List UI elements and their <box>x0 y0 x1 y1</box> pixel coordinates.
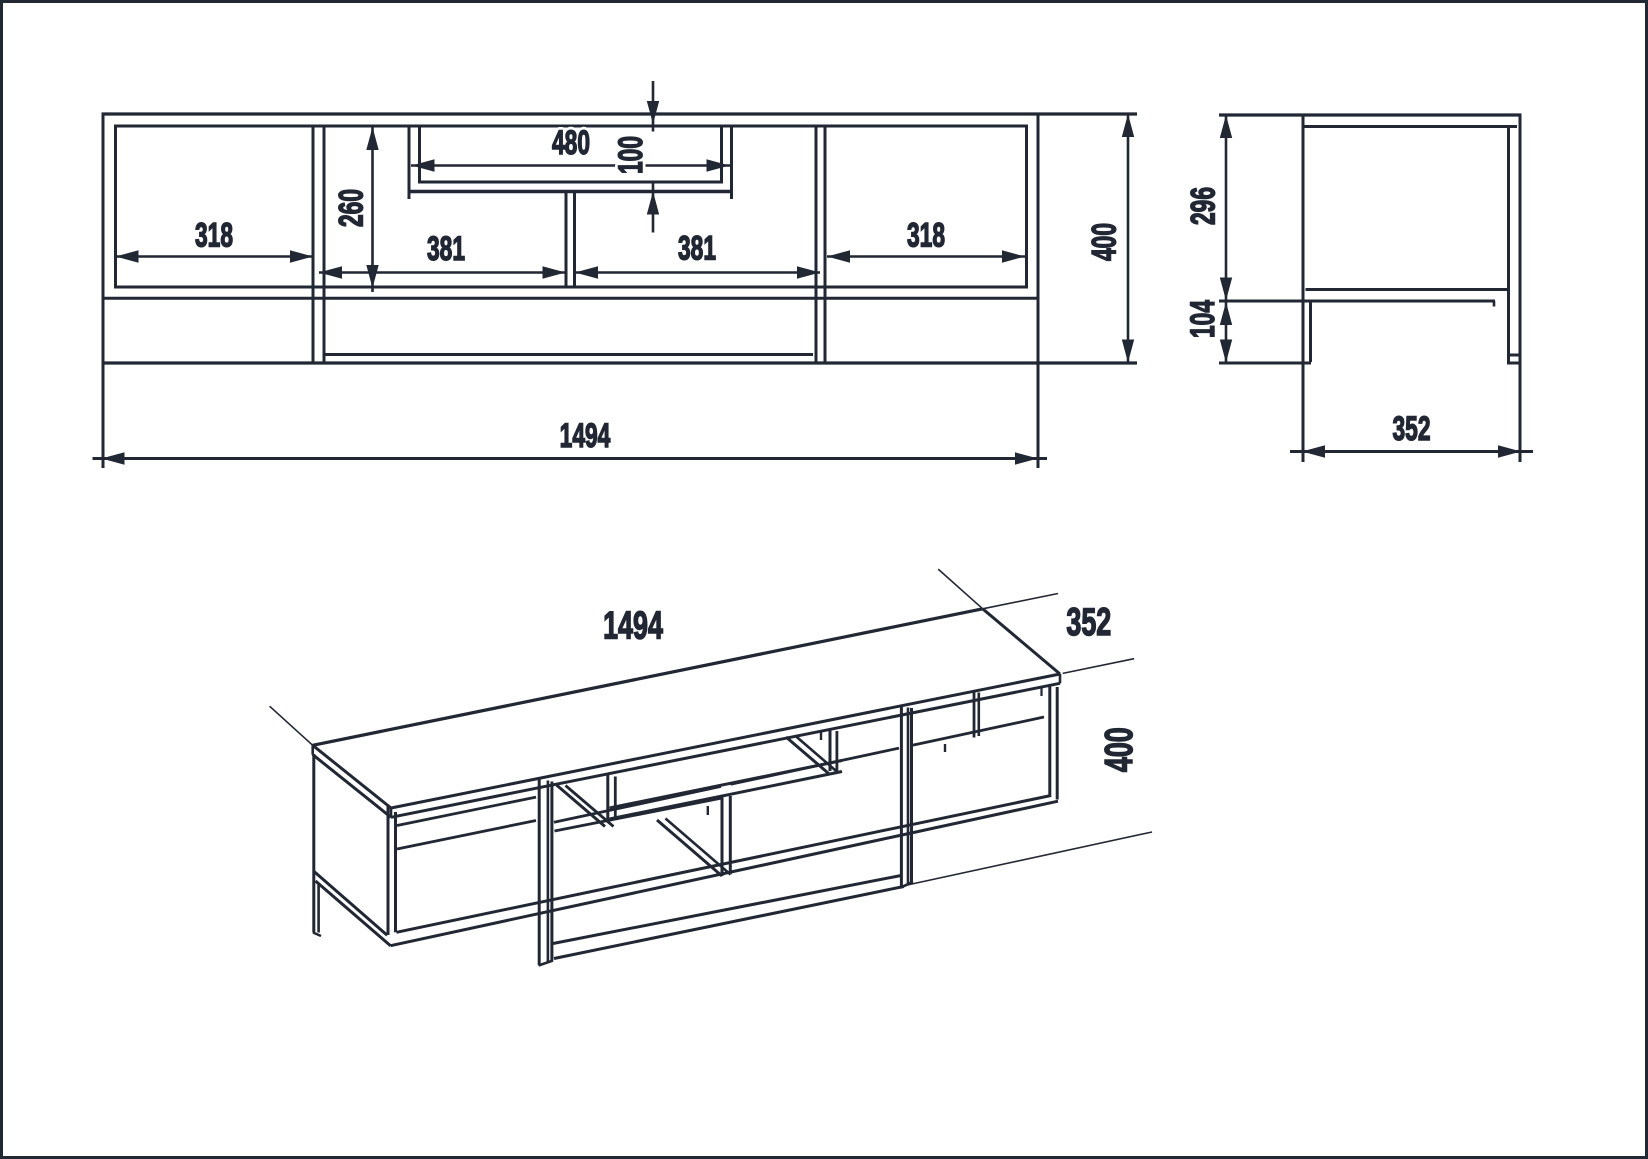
svg-text:260: 260 <box>333 189 371 227</box>
svg-text:400: 400 <box>1098 727 1141 772</box>
svg-text:104: 104 <box>1185 299 1223 338</box>
svg-text:318: 318 <box>907 217 945 255</box>
svg-text:381: 381 <box>678 230 716 268</box>
svg-text:1494: 1494 <box>603 605 663 648</box>
svg-text:480: 480 <box>552 125 590 163</box>
svg-text:1494: 1494 <box>560 418 611 456</box>
svg-text:381: 381 <box>427 231 465 269</box>
svg-text:100: 100 <box>613 136 651 174</box>
svg-text:352: 352 <box>1393 411 1431 449</box>
svg-text:400: 400 <box>1086 223 1124 261</box>
svg-text:296: 296 <box>1185 187 1223 225</box>
svg-text:352: 352 <box>1066 601 1111 644</box>
svg-text:318: 318 <box>195 217 233 255</box>
